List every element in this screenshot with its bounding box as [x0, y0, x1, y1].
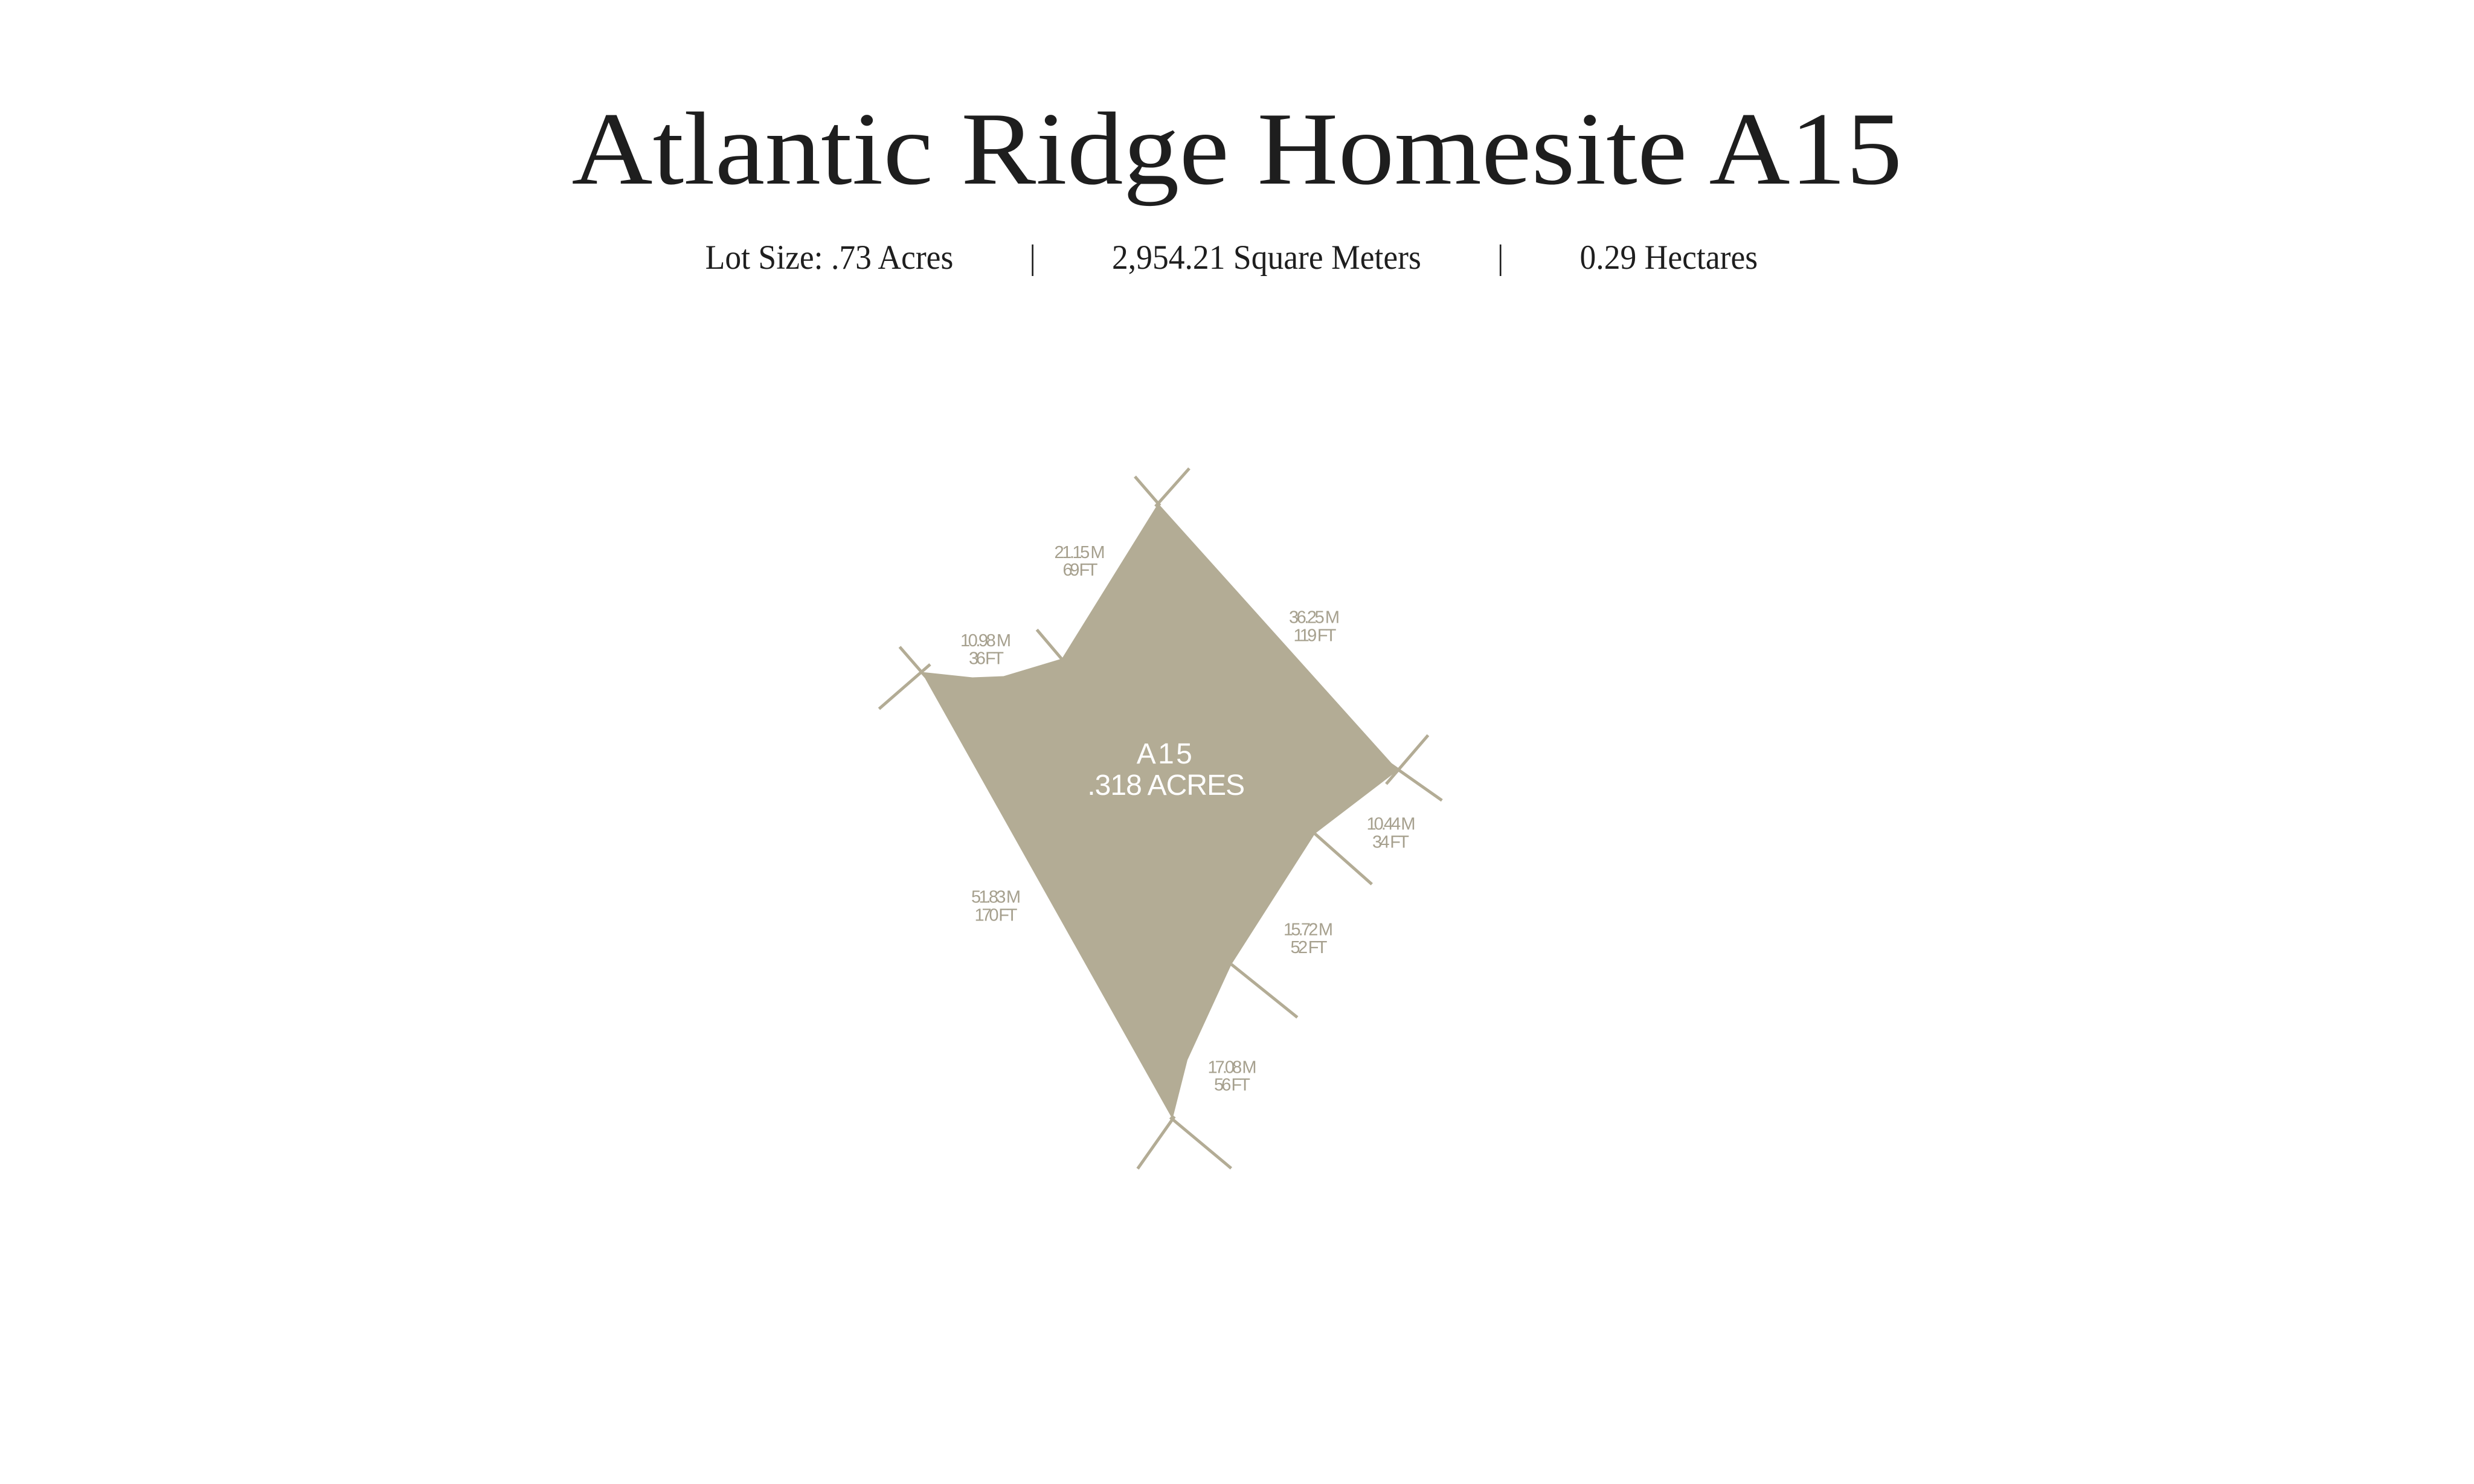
svg-text:119 FT: 119 FT	[1294, 626, 1337, 646]
svg-text:.318 ACRES: .318 ACRES	[1087, 769, 1245, 801]
svg-text:21.15 M: 21.15 M	[1055, 543, 1105, 562]
svg-text:56 FT: 56 FT	[1214, 1075, 1250, 1094]
svg-text:51.83 M: 51.83 M	[971, 888, 1021, 907]
svg-text:36 FT: 36 FT	[969, 649, 1004, 669]
svg-text:69 FT: 69 FT	[1063, 561, 1098, 580]
svg-text:36.25 M: 36.25 M	[1289, 608, 1340, 627]
svg-text:10.98 M: 10.98 M	[960, 631, 1011, 650]
svg-text:15.72 M: 15.72 M	[1284, 920, 1333, 940]
svg-text:52 FT: 52 FT	[1291, 938, 1328, 957]
svg-text:10.44 M: 10.44 M	[1367, 814, 1416, 834]
svg-text:17.08 M: 17.08 M	[1208, 1058, 1257, 1078]
svg-text:34 FT: 34 FT	[1372, 832, 1409, 852]
svg-text:170 FT: 170 FT	[975, 905, 1018, 925]
svg-text:A15: A15	[1137, 738, 1192, 770]
